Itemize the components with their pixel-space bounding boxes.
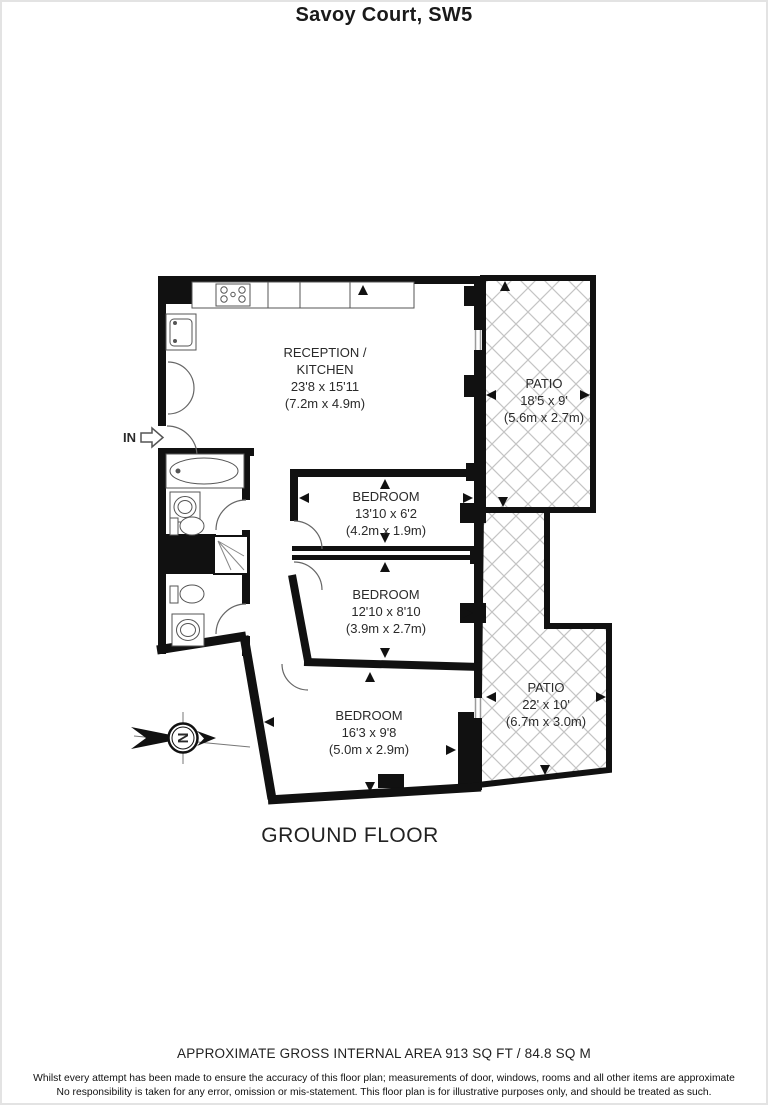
entrance-arrow-icon xyxy=(141,428,163,447)
svg-text:(3.9m x 2.7m): (3.9m x 2.7m) xyxy=(346,621,426,636)
compass-icon: N xyxy=(131,712,250,764)
shower-icon xyxy=(214,536,248,574)
floorplan-page: Savoy Court, SW5 xyxy=(0,0,768,1105)
room-label-reception-kitchen: RECEPTION / KITCHEN 23'8 x 15'11 (7.2m x… xyxy=(283,345,366,411)
basin-icon-2 xyxy=(172,614,204,646)
svg-text:(6.7m x 3.0m): (6.7m x 3.0m) xyxy=(506,714,586,729)
svg-text:(5.0m x 2.9m): (5.0m x 2.9m) xyxy=(329,742,409,757)
svg-text:13'10 x 6'2: 13'10 x 6'2 xyxy=(355,506,417,521)
room-label-bedroom-1: BEDROOM 13'10 x 6'2 (4.2m x 1.9m) xyxy=(346,489,426,538)
svg-text:22' x 10': 22' x 10' xyxy=(522,697,570,712)
svg-text:18'5 x 9': 18'5 x 9' xyxy=(520,393,568,408)
disclaimer-line-1: Whilst every attempt has been made to en… xyxy=(0,1072,768,1086)
svg-text:16'3 x 9'8: 16'3 x 9'8 xyxy=(342,725,397,740)
svg-text:(5.6m x 2.7m): (5.6m x 2.7m) xyxy=(504,410,584,425)
bathtub-icon xyxy=(166,454,244,488)
svg-text:12'10 x 8'10: 12'10 x 8'10 xyxy=(351,604,420,619)
svg-text:KITCHEN: KITCHEN xyxy=(296,362,353,377)
hob-icon xyxy=(216,284,250,306)
svg-text:PATIO: PATIO xyxy=(525,376,562,391)
toilet-icon-2 xyxy=(170,585,204,603)
svg-text:RECEPTION /: RECEPTION / xyxy=(283,345,366,360)
svg-text:(4.2m x 1.9m): (4.2m x 1.9m) xyxy=(346,523,426,538)
sink-icon xyxy=(166,314,196,350)
entrance-marker: IN xyxy=(123,428,163,447)
toilet-icon xyxy=(170,517,204,535)
svg-text:PATIO: PATIO xyxy=(527,680,564,695)
area-note: APPROXIMATE GROSS INTERNAL AREA 913 SQ F… xyxy=(0,1046,768,1061)
floor-plan: IN N xyxy=(0,0,768,1105)
room-label-bedroom-3: BEDROOM 16'3 x 9'8 (5.0m x 2.9m) xyxy=(329,708,409,757)
svg-text:BEDROOM: BEDROOM xyxy=(352,587,419,602)
compass-north-label: N xyxy=(175,733,192,744)
room-label-bedroom-2: BEDROOM 12'10 x 8'10 (3.9m x 2.7m) xyxy=(346,587,426,636)
floor-label: GROUND FLOOR xyxy=(0,824,700,848)
disclaimer-line-2: No responsibility is taken for any error… xyxy=(0,1086,768,1100)
svg-text:(7.2m x 4.9m): (7.2m x 4.9m) xyxy=(285,396,365,411)
patio-bottom-area xyxy=(478,510,609,785)
svg-text:23'8 x 15'11: 23'8 x 15'11 xyxy=(291,379,359,394)
entrance-label: IN xyxy=(123,430,136,445)
svg-text:BEDROOM: BEDROOM xyxy=(352,489,419,504)
disclaimer: Whilst every attempt has been made to en… xyxy=(0,1072,768,1099)
svg-text:BEDROOM: BEDROOM xyxy=(335,708,402,723)
